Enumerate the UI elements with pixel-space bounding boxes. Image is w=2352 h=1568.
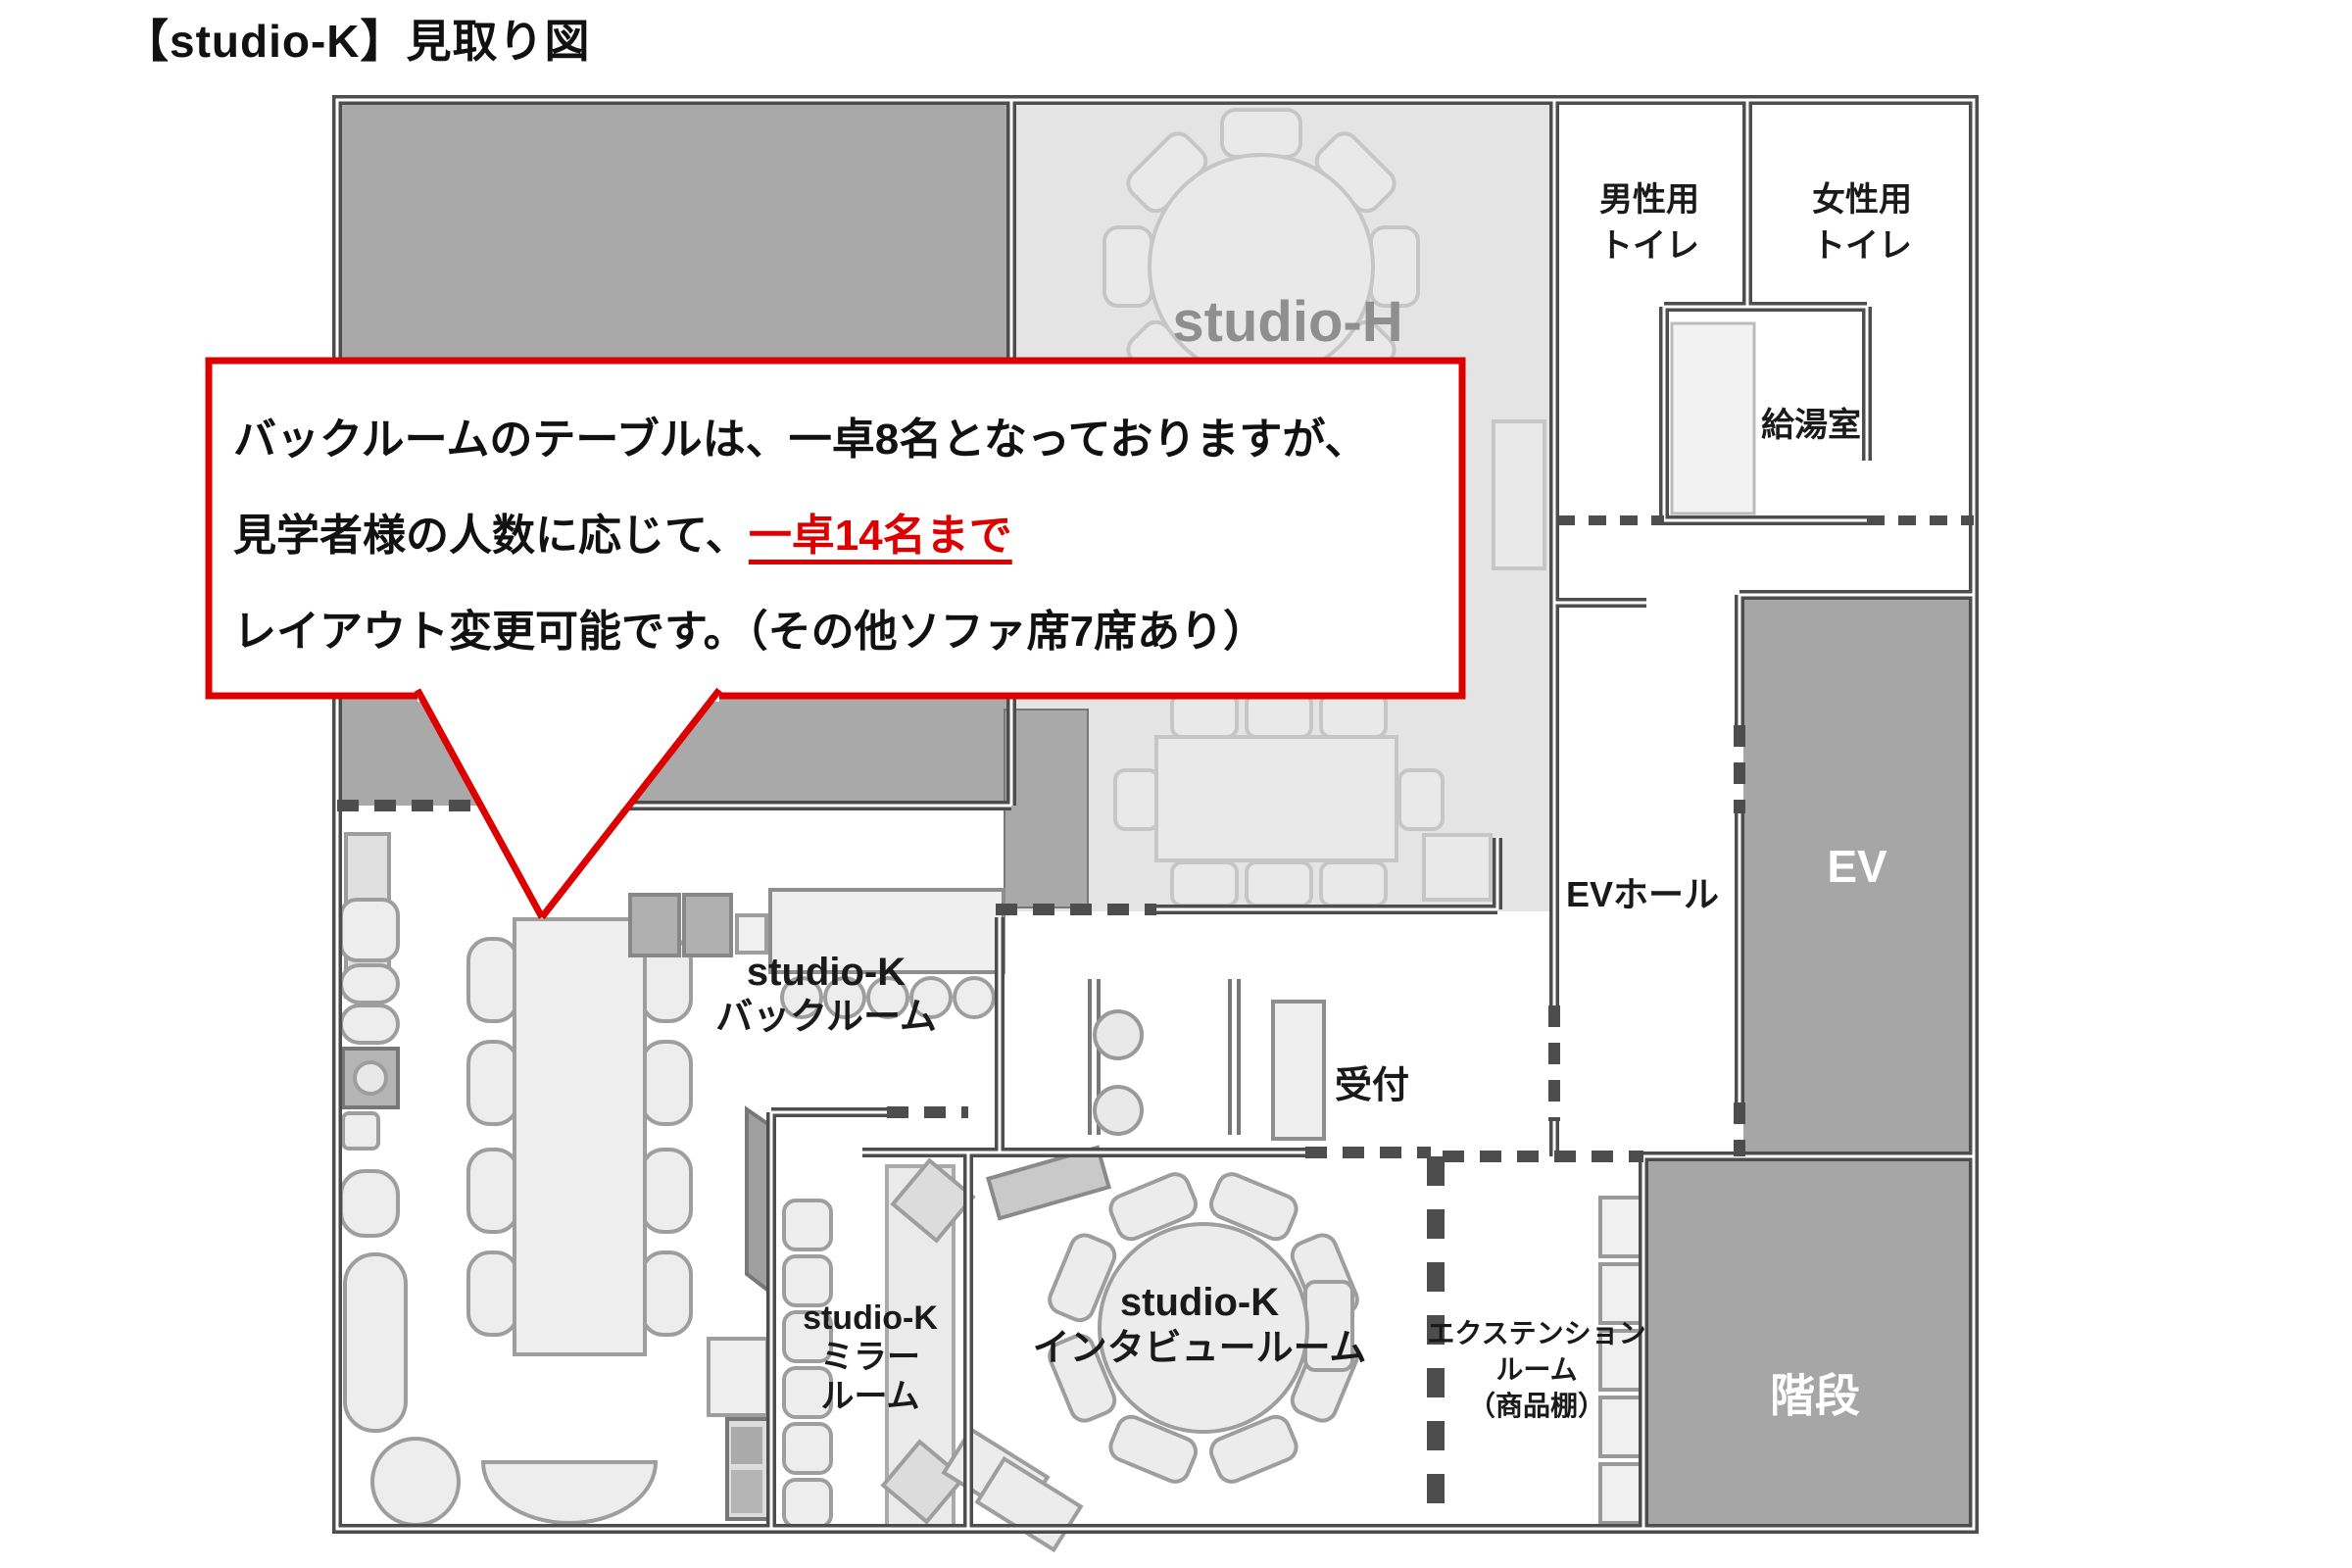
- label-mens-toilet-1: 男性用: [1599, 181, 1699, 219]
- label-mens-toilet-2: トイレ: [1599, 227, 1699, 265]
- room-stairs: [1647, 1160, 1974, 1529]
- label-kitchenette: 給湯室: [1761, 406, 1861, 444]
- studio-h-side-sofa: [1494, 421, 1544, 568]
- label-womens-toilet-2: トイレ: [1812, 227, 1912, 265]
- label-extension-2: ルーム: [1495, 1354, 1577, 1385]
- label-mirror-1: studio-K: [803, 1299, 938, 1337]
- label-backroom-2: バックルーム: [715, 997, 937, 1038]
- label-womens-toilet-1: 女性用: [1812, 180, 1912, 219]
- backroom-round-table: [372, 1439, 459, 1525]
- studio-h-rect-table: [1156, 737, 1396, 860]
- callout-text: バックルームのテーブルは、一卓8名となっておりますが、 見学者様の人数に応じて、…: [233, 392, 1448, 680]
- studio-h-corner-sofa: [1424, 835, 1491, 900]
- callout-line-2: 見学者様の人数に応じて、一卓14名まで: [233, 488, 1448, 584]
- label-studio-h: studio-H: [1172, 290, 1402, 354]
- label-stairs: 階段: [1770, 1370, 1860, 1421]
- backroom-half-round-sofa: [483, 1462, 656, 1523]
- label-interview-1: studio-K: [1120, 1281, 1279, 1324]
- wall-mass-strip: [1004, 710, 1088, 907]
- reception-furniture: [1090, 979, 1324, 1139]
- backroom-curved-sofa: [345, 1254, 406, 1431]
- label-extension-3: （商品棚）: [1468, 1390, 1605, 1421]
- floor-plan-page: studio-H 男性用 トイレ 女性用 トイレ 給湯室 EVホール EV 階段…: [0, 0, 2352, 1568]
- backroom-big-table: [514, 919, 645, 1354]
- label-mirror-3: ルーム: [821, 1378, 920, 1415]
- label-ev: EV: [1827, 841, 1887, 892]
- label-backroom-1: studio-K: [747, 951, 906, 994]
- label-mirror-2: ミラー: [820, 1339, 920, 1376]
- page-title: 【studio-K】見取り図: [123, 6, 591, 71]
- backroom-cabinet-2: [684, 895, 731, 955]
- callout-line-3: レイアウト変更可能です。（その他ソファ席7席あり）: [233, 584, 1448, 680]
- label-reception: 受付: [1335, 1065, 1409, 1106]
- floor-plan-svg: studio-H 男性用 トイレ 女性用 トイレ 給湯室 EVホール EV 階段…: [0, 0, 2352, 1568]
- label-extension-1: エクステンション: [1427, 1318, 1645, 1348]
- extension-shelves: [1600, 1198, 1643, 1523]
- callout-highlight: 一卓14名まで: [749, 512, 1012, 560]
- callout-line-1: バックルームのテーブルは、一卓8名となっておりますが、: [233, 392, 1448, 488]
- interview-monitor: [988, 1148, 1108, 1218]
- label-interview-2: インタビュールーム: [1033, 1328, 1367, 1369]
- kitchenette-counter: [1672, 323, 1754, 514]
- reception-desk: [1273, 1002, 1324, 1139]
- label-ev-hall: EVホール: [1566, 874, 1719, 914]
- backroom-cabinet-1: [630, 895, 679, 955]
